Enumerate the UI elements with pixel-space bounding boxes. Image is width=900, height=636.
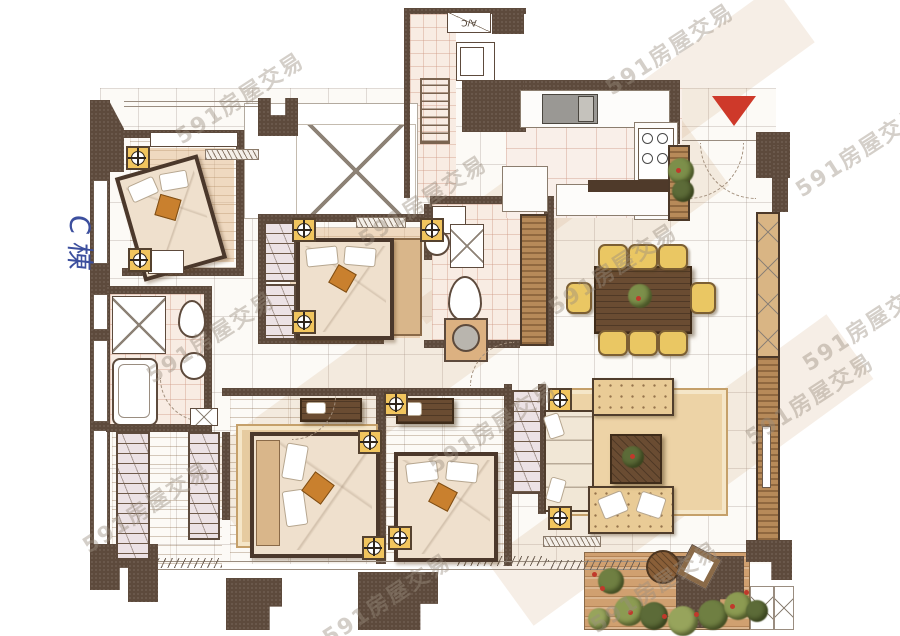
- lightwell-x: [296, 124, 416, 218]
- window-right: [762, 426, 771, 488]
- garden-shrub: [746, 600, 768, 622]
- ac-label: A/C: [447, 12, 491, 33]
- column-marker: [128, 248, 152, 272]
- dining-chair: [628, 244, 658, 270]
- dining-flower: [636, 296, 641, 301]
- coffee-table-flower: [630, 454, 635, 459]
- entry-flower: [676, 168, 681, 173]
- bath1-sink: [180, 352, 208, 380]
- garden-flower: [662, 614, 667, 619]
- bath2-window: [450, 224, 484, 268]
- bath2-washer-door: [452, 324, 480, 352]
- garden-planter-2: [774, 586, 794, 630]
- garden-flower: [744, 590, 749, 595]
- master-headboard-bench: [256, 440, 280, 546]
- bedroom2-window-coil: [356, 217, 406, 228]
- wall-closet-right: [222, 432, 230, 520]
- dining-chair: [690, 282, 716, 314]
- dining-chair: [628, 330, 658, 356]
- garden-flower: [628, 610, 633, 615]
- bedroom3-pillow: [445, 460, 479, 483]
- washer-dryer-door: [460, 47, 484, 76]
- column-marker: [126, 146, 150, 170]
- window-left-4: [93, 430, 108, 548]
- wall-utility-left: [404, 8, 410, 198]
- bedroom1-wardrobe: [150, 132, 238, 147]
- column-marker: [388, 526, 412, 550]
- burner: [642, 133, 653, 144]
- garden-flower: [592, 572, 597, 577]
- column-marker: [292, 310, 316, 334]
- column-marker: [548, 388, 572, 412]
- shoe-cabinet: [756, 212, 780, 360]
- wall-pier-bottom-3: [358, 572, 438, 630]
- wall-pier-bottomright: [746, 540, 792, 580]
- closet-wardrobe-1: [116, 432, 150, 560]
- kitchen-island-top: [588, 180, 668, 192]
- bedroom1-side-table: [148, 250, 184, 274]
- closet-wardrobe-2: [188, 432, 220, 540]
- wall-bedroom3-right: [504, 384, 512, 566]
- bedroom3-wardrobe: [512, 390, 542, 494]
- closet-hamper: [190, 408, 218, 426]
- dining-chair: [598, 244, 628, 270]
- watermark-text: 591房屋交易: [788, 96, 900, 203]
- wall-chunk-top: [492, 8, 524, 34]
- bedroom2-pillow: [305, 245, 339, 267]
- hall-cabinet: [520, 214, 548, 346]
- burner: [657, 133, 668, 144]
- dining-chair: [658, 330, 688, 356]
- fridge: [502, 166, 548, 212]
- drying-rack: [420, 78, 450, 144]
- window-top: [124, 101, 258, 107]
- entrance-marker: [712, 96, 756, 126]
- column-marker: [358, 430, 382, 454]
- wall-kitchen-top: [524, 80, 676, 90]
- garden-flower: [694, 612, 699, 617]
- floor-plan-canvas: A/C: [0, 0, 900, 636]
- column-marker: [292, 218, 316, 242]
- dining-chair: [598, 330, 628, 356]
- dining-chair: [566, 282, 592, 314]
- column-marker: [384, 392, 408, 416]
- bath1-tub-inner: [118, 364, 150, 418]
- building-label: C棟: [61, 213, 101, 327]
- bath1-toilet: [178, 300, 206, 338]
- burner: [657, 153, 668, 164]
- window-ticks-3: [548, 560, 640, 570]
- bath1-shower: [112, 296, 166, 354]
- window-left-3: [93, 340, 108, 422]
- bedroom2-pillow: [343, 246, 377, 268]
- dining-chair: [658, 244, 688, 270]
- burner: [642, 153, 653, 164]
- entry-plant: [672, 180, 694, 202]
- wall-master-top: [222, 388, 384, 396]
- living-window-coil: [543, 536, 601, 547]
- wall-pier-bottom-2: [226, 578, 282, 630]
- wall-bath1-top: [106, 286, 212, 294]
- garden-shrub: [668, 606, 698, 636]
- window-ticks-1: [152, 558, 222, 568]
- garden-flower: [600, 586, 605, 591]
- sofa-seat-top: [592, 378, 674, 416]
- bath2-toilet: [448, 276, 482, 322]
- bedroom1-window-coil: [205, 149, 259, 160]
- garden-flower: [730, 604, 735, 609]
- column-marker: [362, 536, 386, 560]
- garden-round-table: [646, 550, 680, 584]
- column-marker: [420, 218, 444, 242]
- bedroom3-pillow: [405, 460, 439, 484]
- wall-chunk-mid: [462, 80, 526, 132]
- garden-shrub: [588, 608, 610, 630]
- kitchen-sink-divider: [578, 96, 594, 122]
- wall-right-upper: [772, 146, 788, 212]
- column-marker: [548, 506, 572, 530]
